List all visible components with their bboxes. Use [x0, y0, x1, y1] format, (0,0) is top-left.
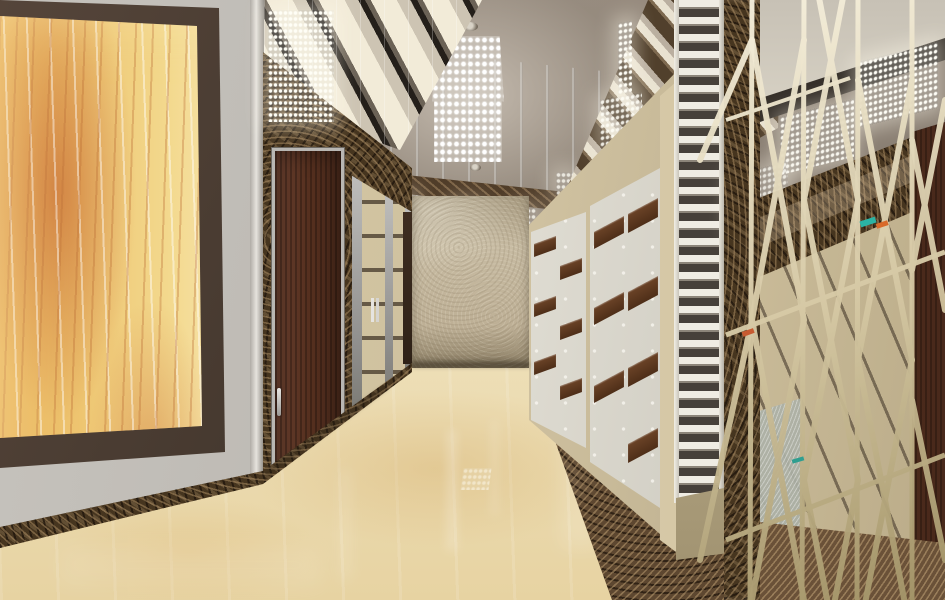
floor-shadow [412, 362, 529, 367]
mirror-lattice [0, 0, 945, 600]
corridor-render: Luxury marble corridor interior renderin… [0, 0, 945, 600]
